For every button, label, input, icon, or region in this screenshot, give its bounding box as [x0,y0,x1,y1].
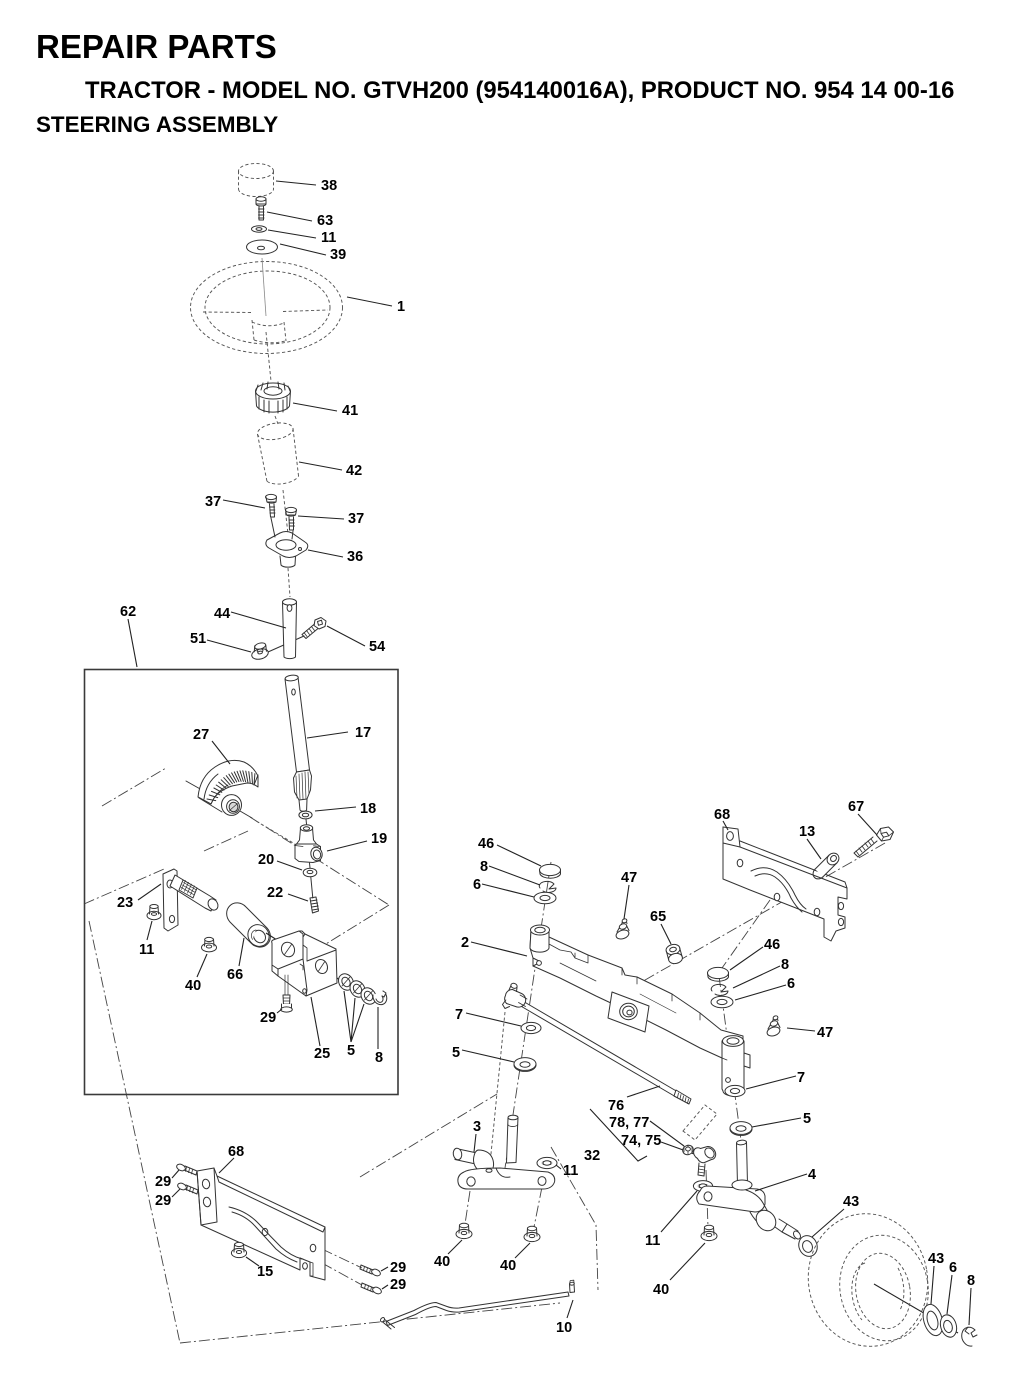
svg-text:40: 40 [500,1258,516,1274]
svg-text:15: 15 [257,1264,273,1280]
svg-text:5: 5 [347,1043,355,1059]
svg-text:8: 8 [480,859,488,875]
svg-text:8: 8 [375,1050,383,1066]
svg-text:62: 62 [120,604,136,620]
svg-text:27: 27 [193,727,209,743]
svg-text:46: 46 [478,836,494,852]
svg-text:11: 11 [321,230,336,246]
svg-text:5: 5 [452,1045,460,1061]
svg-text:39: 39 [330,247,346,263]
svg-text:68: 68 [228,1144,244,1160]
svg-text:74, 75: 74, 75 [621,1133,661,1149]
svg-text:4: 4 [808,1167,816,1183]
svg-text:47: 47 [817,1025,833,1041]
svg-text:18: 18 [360,801,376,817]
svg-text:78, 77: 78, 77 [609,1115,649,1131]
svg-text:2: 2 [461,935,469,951]
svg-text:25: 25 [314,1046,330,1062]
svg-text:40: 40 [653,1282,669,1298]
svg-text:37: 37 [348,511,364,527]
svg-text:11: 11 [563,1163,578,1179]
svg-text:11: 11 [645,1233,660,1249]
svg-text:63: 63 [317,213,333,229]
svg-text:8: 8 [967,1273,975,1289]
svg-text:40: 40 [185,978,201,994]
svg-text:66: 66 [227,967,243,983]
svg-text:7: 7 [797,1070,805,1086]
svg-text:44: 44 [214,606,230,622]
svg-text:22: 22 [267,885,283,901]
svg-text:11: 11 [139,942,154,958]
svg-text:5: 5 [803,1111,811,1127]
svg-text:38: 38 [321,178,337,194]
svg-text:1: 1 [397,299,405,315]
svg-text:76: 76 [608,1098,624,1114]
svg-text:47: 47 [621,870,637,886]
svg-text:43: 43 [928,1251,944,1267]
svg-text:7: 7 [455,1007,463,1023]
svg-text:6: 6 [949,1260,957,1276]
svg-text:68: 68 [714,807,730,823]
svg-text:67: 67 [848,799,864,815]
svg-text:54: 54 [369,639,385,655]
svg-text:17: 17 [355,725,371,741]
svg-text:41: 41 [342,403,358,419]
svg-text:13: 13 [799,824,815,840]
svg-text:REPAIR PARTS: REPAIR PARTS [36,28,277,65]
svg-text:51: 51 [190,631,206,647]
svg-text:29: 29 [155,1193,171,1209]
svg-text:23: 23 [117,895,133,911]
svg-text:20: 20 [258,852,274,868]
svg-text:37: 37 [205,494,221,510]
svg-text:29: 29 [155,1174,171,1190]
svg-text:29: 29 [260,1010,276,1026]
svg-text:STEERING ASSEMBLY: STEERING ASSEMBLY [36,112,278,137]
svg-text:36: 36 [347,549,363,565]
svg-text:TRACTOR - MODEL NO. GTVH200 (9: TRACTOR - MODEL NO. GTVH200 (954140016A)… [85,77,954,104]
svg-text:8: 8 [781,957,789,973]
svg-text:6: 6 [787,976,795,992]
svg-text:29: 29 [390,1260,406,1276]
svg-text:43: 43 [843,1194,859,1210]
svg-text:65: 65 [650,909,666,925]
svg-text:32: 32 [584,1148,600,1164]
svg-text:42: 42 [346,463,362,479]
svg-text:19: 19 [371,831,387,847]
svg-text:6: 6 [473,877,481,893]
svg-text:46: 46 [764,937,780,953]
svg-text:40: 40 [434,1254,450,1270]
svg-text:29: 29 [390,1277,406,1293]
svg-text:3: 3 [473,1119,481,1135]
svg-text:10: 10 [556,1320,572,1336]
